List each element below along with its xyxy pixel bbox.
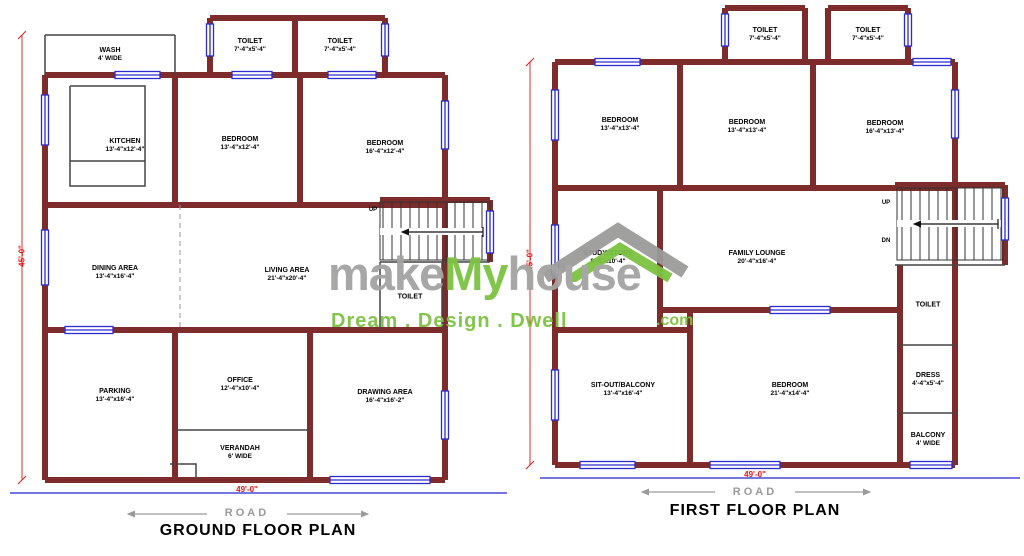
height-dimension: 45'-0" [18, 245, 27, 267]
room-label-family-lounge: FAMILY LOUNGE20'-4"x16'-4" [729, 249, 786, 267]
room-label-office: OFFICE12'-4"x10'-4" [221, 376, 260, 394]
room-label-wash: WASH4' WIDE [98, 46, 122, 64]
stair-up-label: UP [882, 200, 890, 206]
room-label-toilet-1: TOILET7'-4"x5'-4" [749, 26, 781, 44]
ground-floor-title: GROUND FLOOR PLAN [160, 522, 357, 540]
first-floor-title: FIRST FLOOR PLAN [670, 502, 841, 520]
road-label: ROAD [225, 507, 269, 519]
room-label-toilet-2: TOILET7'-4"x5'-4" [852, 26, 884, 44]
room-label-bedroom-4: BEDROOM21'-4"x14'-4" [771, 381, 810, 399]
room-label-living: LIVING AREA21'-4"x20'-4" [265, 266, 310, 284]
road-label: ROAD [733, 486, 777, 498]
room-label-toilet-3: TOILET [398, 292, 423, 301]
room-label-parking: PARKING13'-4"x16'-4" [96, 387, 135, 405]
room-label-dress: DRESS4'-4"x5'-4" [912, 371, 944, 389]
room-label-toilet-1: TOILET7'-4"x5'-4" [234, 37, 266, 55]
room-label-bedroom-1: BEDROOM13'-4"x13'-4" [601, 116, 640, 134]
room-label-study-store: STUDY/STORE8'-4"x10'-4" [583, 249, 633, 267]
room-label-bedroom-2: BEDROOM13'-4"x13'-4" [728, 118, 767, 136]
stair-dn-label: DN [882, 238, 891, 244]
room-label-dining: DINING AREA13'-4"x16'-4" [92, 264, 138, 282]
room-label-balcony: BALCONY4' WIDE [911, 431, 946, 449]
room-label-bedroom-1: BEDROOM13'-4"x12'-4" [221, 135, 260, 153]
ground-floor-plan: WASH4' WIDE TOILET7'-4"x5'-4" TOILET7'-4… [10, 6, 515, 554]
first-floor-plan: TOILET7'-4"x5'-4" TOILET7'-4"x5'-4" BEDR… [520, 0, 1024, 556]
ground-floor-linework [10, 6, 515, 554]
room-label-kitchen: KITCHEN13'-4"x12'-4" [106, 137, 145, 155]
thin-lines [895, 265, 1005, 413]
width-dimension: 49'-0" [744, 470, 766, 479]
room-label-bedroom-2: BEDROOM16'-4"x12'-4" [366, 139, 405, 157]
room-label-sitout-balcony: SIT-OUT/BALCONY13'-4"x16'-4" [591, 381, 655, 399]
room-label-verandah: VERANDAH6' WIDE [220, 444, 260, 462]
room-label-toilet-3: TOILET [916, 300, 941, 309]
room-label-toilet-2: TOILET7'-4"x5'-4" [324, 37, 356, 55]
room-label-bedroom-3: BEDROOM16'-4"x13'-4" [866, 119, 905, 137]
width-dimension: 49'-0" [236, 485, 258, 494]
height-dimension: 45'-0" [526, 249, 535, 271]
room-label-drawing: DRAWING AREA16'-4"x16'-2" [357, 388, 412, 406]
stair-up-label: UP [369, 207, 377, 213]
first-floor-linework [520, 0, 1024, 556]
